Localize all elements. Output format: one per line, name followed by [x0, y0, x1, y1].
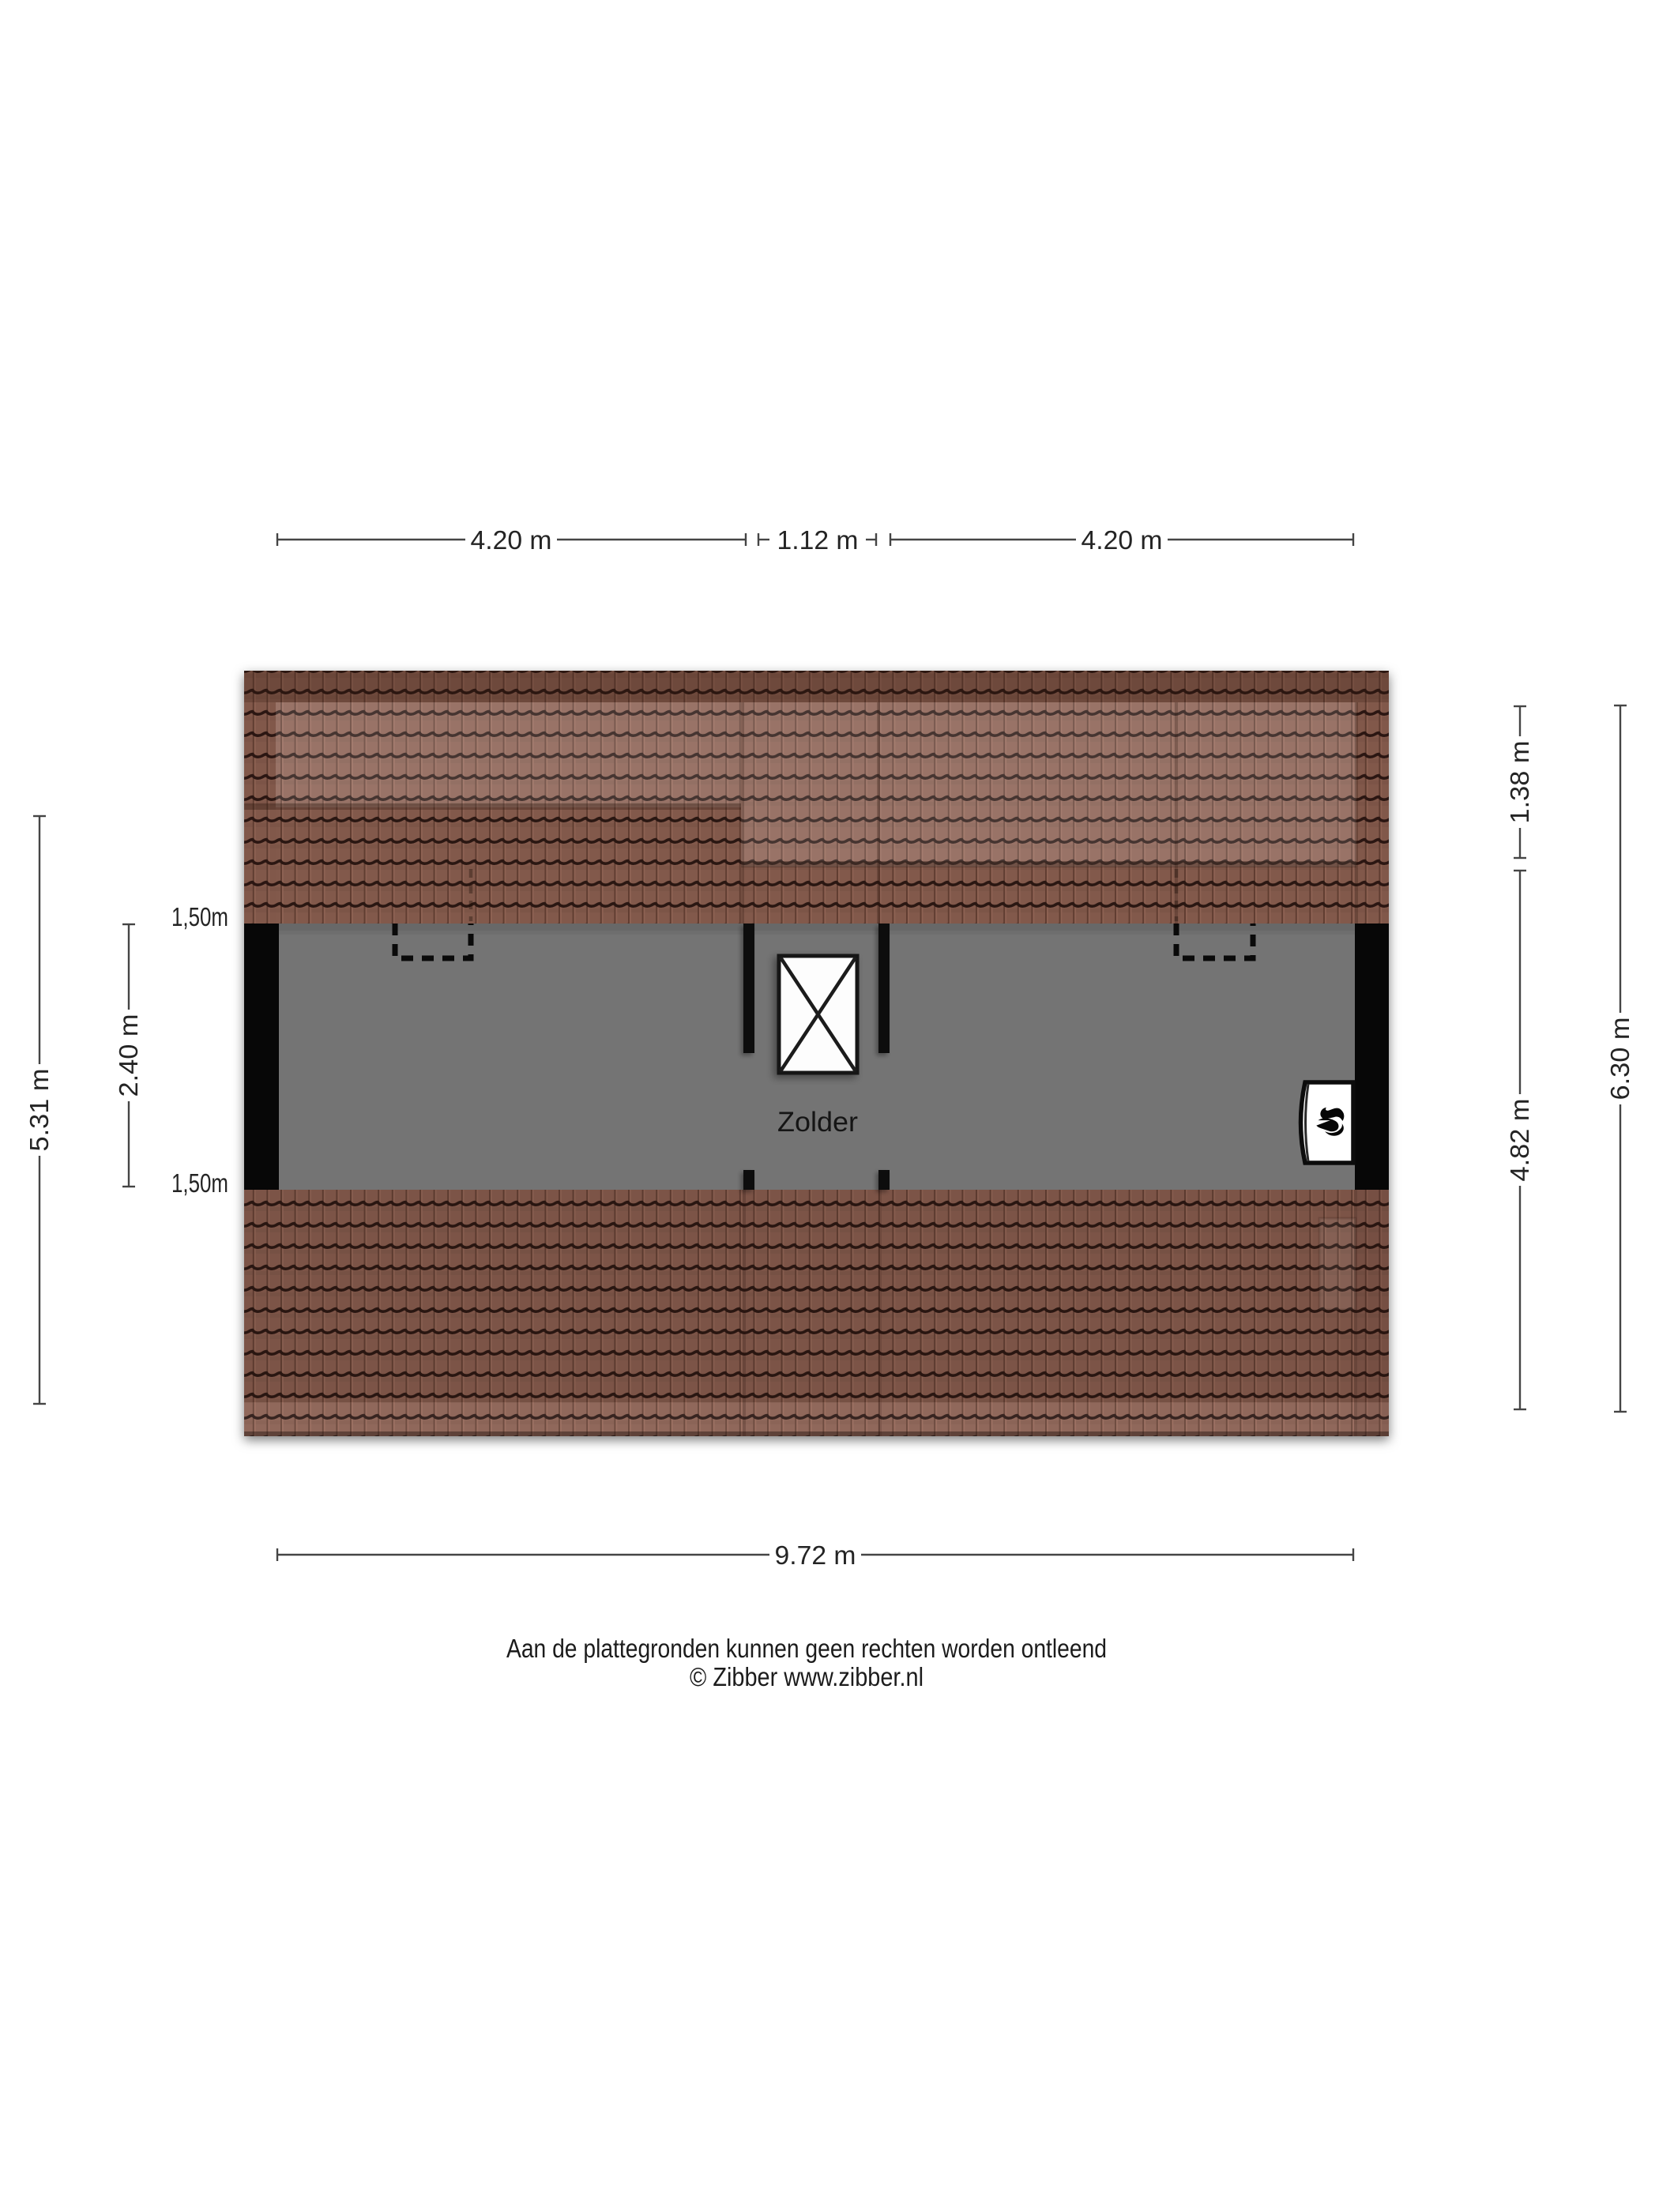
svg-text:Aan de plattegronden kunnen ge: Aan de plattegronden kunnen geen rechten…	[506, 1634, 1107, 1663]
svg-text:1.12 m: 1.12 m	[777, 525, 859, 555]
svg-text:4.82 m: 4.82 m	[1505, 1099, 1534, 1182]
svg-text:6.30 m: 6.30 m	[1605, 1018, 1635, 1100]
svg-text:2.40 m: 2.40 m	[114, 1014, 143, 1097]
svg-text:© Zibber www.zibber.nl: © Zibber www.zibber.nl	[690, 1662, 924, 1691]
svg-text:1,50m: 1,50m	[171, 1168, 228, 1198]
svg-text:5.31 m: 5.31 m	[24, 1069, 54, 1152]
svg-text:Zolder: Zolder	[777, 1107, 858, 1138]
svg-text:1.38 m: 1.38 m	[1505, 741, 1534, 824]
svg-text:4.20 m: 4.20 m	[1082, 525, 1163, 555]
svg-text:4.20 m: 4.20 m	[471, 525, 552, 555]
svg-text:1,50m: 1,50m	[171, 902, 228, 931]
svg-text:9.72 m: 9.72 m	[775, 1540, 856, 1570]
